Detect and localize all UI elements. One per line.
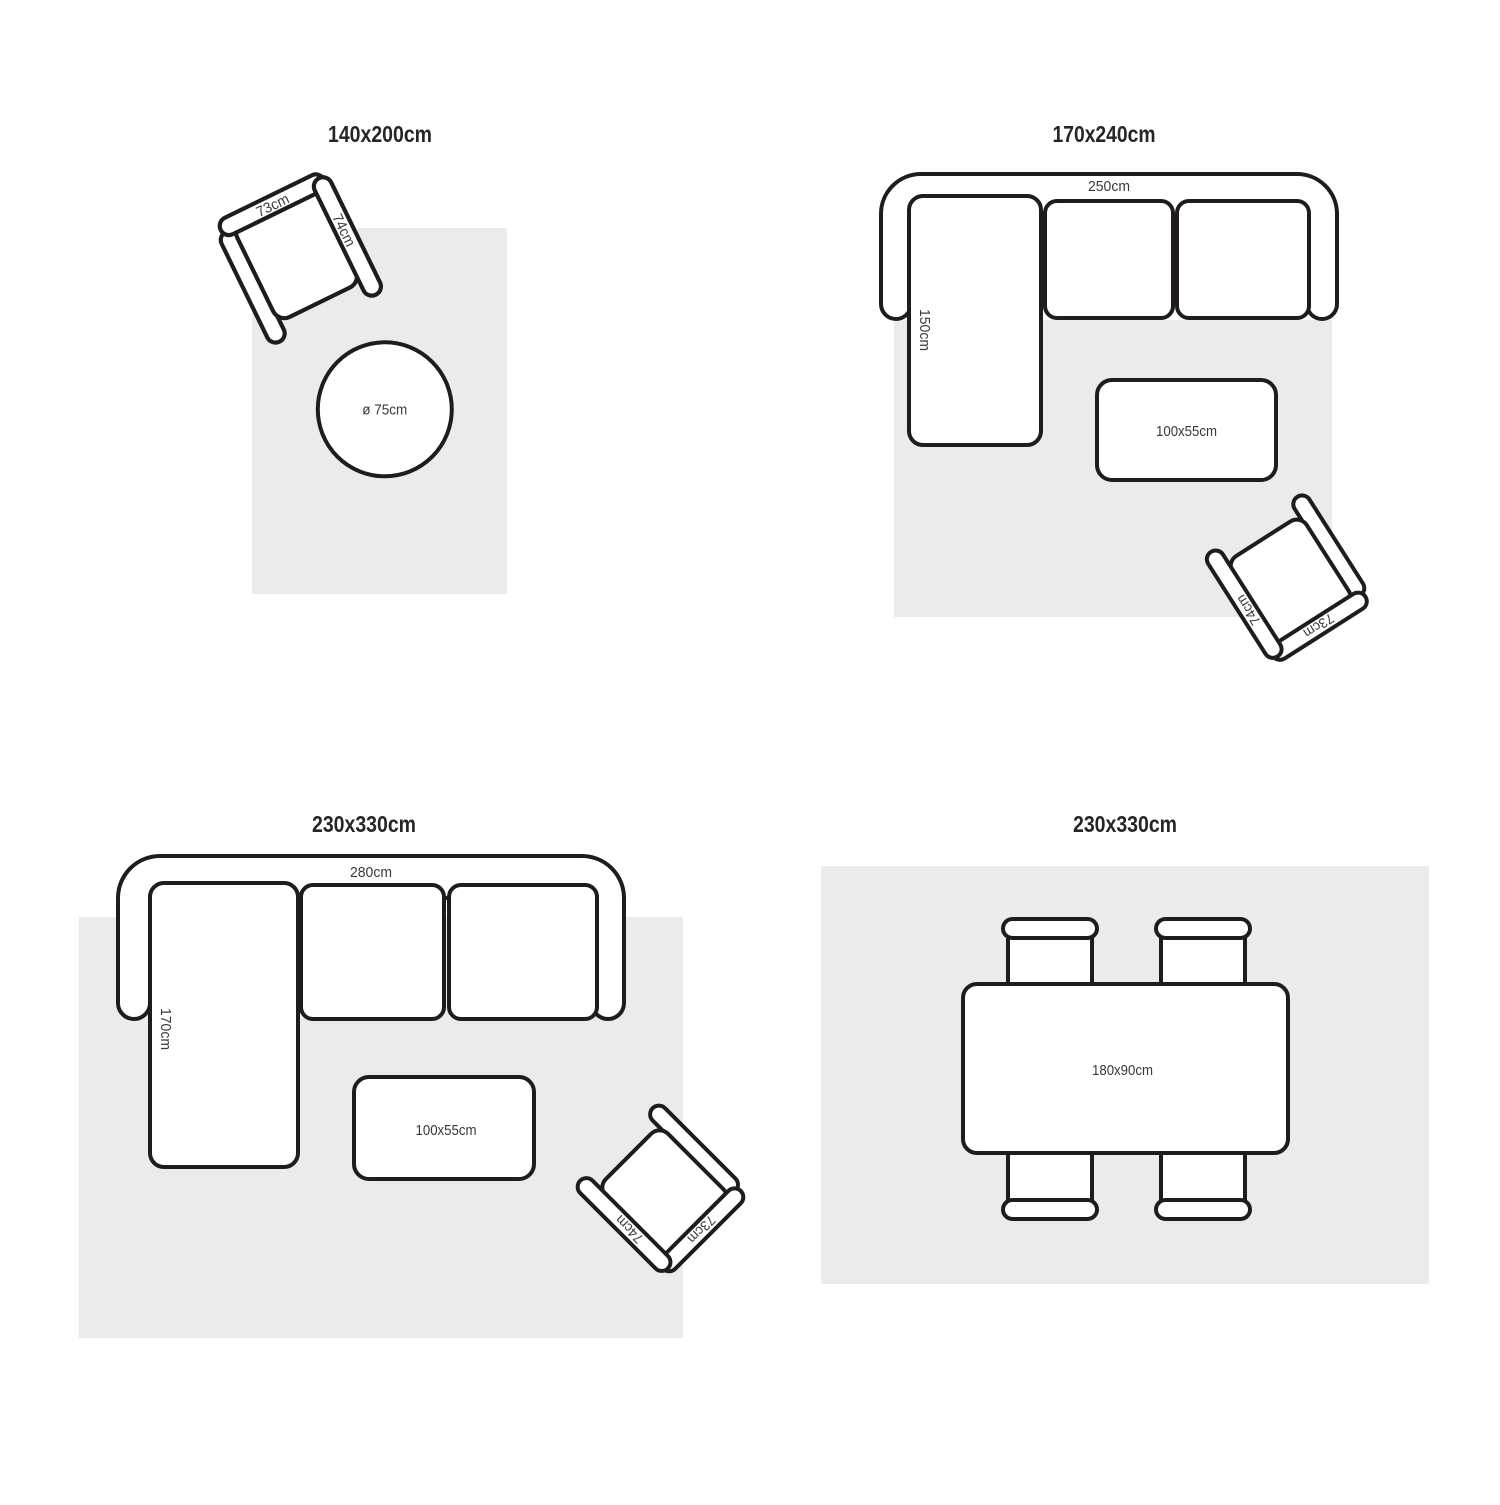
svg-text:ø 75cm: ø 75cm (362, 402, 407, 419)
svg-text:230x330cm: 230x330cm (1073, 811, 1177, 837)
svg-text:100x55cm: 100x55cm (1156, 423, 1217, 440)
svg-text:230x330cm: 230x330cm (312, 811, 416, 837)
svg-text:170cm: 170cm (157, 1008, 174, 1050)
svg-text:140x200cm: 140x200cm (328, 121, 432, 147)
svg-text:170x240cm: 170x240cm (1053, 121, 1156, 147)
svg-text:280cm: 280cm (350, 864, 392, 881)
svg-text:100x55cm: 100x55cm (416, 1122, 477, 1139)
svg-text:150cm: 150cm (916, 309, 933, 351)
svg-text:250cm: 250cm (1088, 178, 1130, 195)
svg-text:180x90cm: 180x90cm (1092, 1062, 1153, 1079)
